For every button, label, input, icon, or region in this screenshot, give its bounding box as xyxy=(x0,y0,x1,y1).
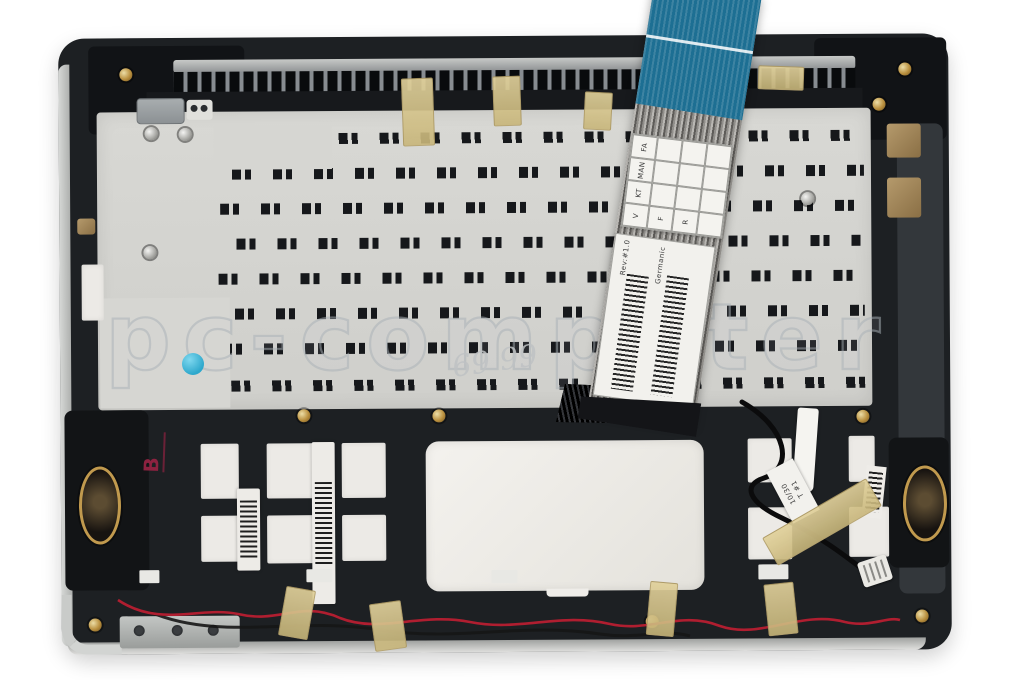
two-hole-bracket xyxy=(187,100,213,120)
left-speaker xyxy=(79,466,121,544)
screw xyxy=(432,409,445,422)
cable-tip-line xyxy=(646,34,753,54)
cable-barcode xyxy=(611,274,649,392)
screw xyxy=(856,410,869,423)
qc-grid-cell: FA xyxy=(640,142,649,152)
right-speaker xyxy=(903,465,947,541)
qc-grid-cell: R xyxy=(681,219,690,225)
cable-label-layout: Germanic xyxy=(654,246,667,285)
edge-pad xyxy=(77,219,95,235)
cable-label-rev: Rev:#1.0 xyxy=(619,239,632,276)
blue-dot-sticker xyxy=(182,353,204,375)
plate-blank-area xyxy=(214,125,332,170)
gray-rubber-bumper xyxy=(136,98,184,124)
masking-tape xyxy=(401,77,435,146)
barcode-strip xyxy=(237,489,261,571)
rail-notch xyxy=(491,570,517,583)
screw xyxy=(801,192,814,205)
edge-pad xyxy=(82,264,104,320)
cable-qc-grid-label: FA MAN KT V F R xyxy=(621,133,734,239)
adhesive-pad xyxy=(201,516,239,562)
screw xyxy=(89,618,102,631)
cable-barcode-label: Rev:#1.0 Germanic xyxy=(593,233,716,409)
bronze-tape-pad xyxy=(887,177,921,217)
screw xyxy=(145,127,158,140)
cable-blue-stiffener xyxy=(635,0,761,120)
red-stamp-letter: B xyxy=(139,457,164,473)
screw xyxy=(179,128,192,141)
screw xyxy=(143,246,156,259)
qc-grid-cell: V xyxy=(631,212,640,218)
bottom-metal-bracket xyxy=(120,616,240,649)
red-qc-stamp: B xyxy=(143,432,166,478)
adhesive-pad xyxy=(201,444,239,499)
screw xyxy=(297,409,310,422)
masking-tape xyxy=(369,600,407,652)
adhesive-pad xyxy=(342,443,386,498)
screw xyxy=(916,609,929,622)
cable-barcode xyxy=(650,275,688,397)
masking-tape xyxy=(646,581,679,637)
screw xyxy=(898,63,911,76)
touchpad-tab xyxy=(546,588,588,596)
qc-grid-cell: KT xyxy=(634,188,643,198)
masking-tape xyxy=(583,91,613,130)
photo-stage: pc-computer 69 99 B 10/30 T #1 FA xyxy=(0,0,1024,680)
rail-notch xyxy=(306,569,332,582)
adhesive-pad xyxy=(342,515,386,561)
touchpad-opening xyxy=(426,440,705,592)
masking-tape xyxy=(758,65,805,91)
qc-grid-cell: F xyxy=(656,216,664,221)
bronze-tape-pad xyxy=(887,123,921,157)
qc-grid-cell: MAN xyxy=(636,161,646,179)
masking-tape xyxy=(492,76,522,127)
adhesive-pad xyxy=(267,515,315,563)
masking-tape xyxy=(763,582,798,637)
screw xyxy=(119,68,132,81)
rail-notch xyxy=(758,564,788,579)
rail-notch xyxy=(139,570,159,583)
screw xyxy=(873,98,886,111)
